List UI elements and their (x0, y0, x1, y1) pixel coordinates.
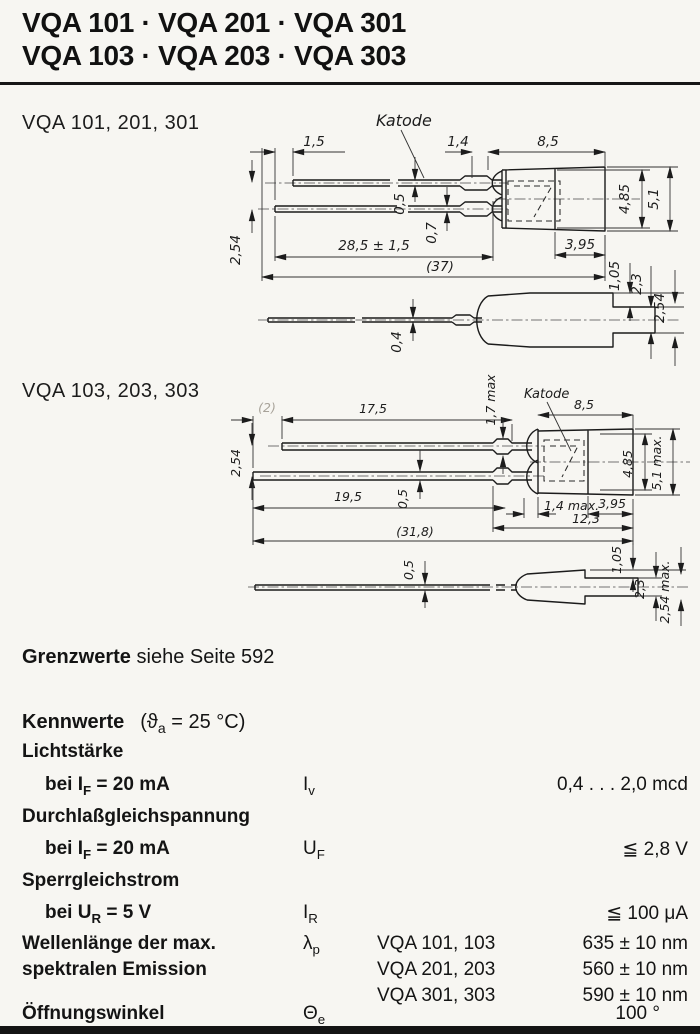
test-condition: bei IF = 20 mA (45, 774, 170, 798)
dim-label-d2-side-lead-th: 0,5 (401, 560, 416, 580)
dim-label-d1-outer-h: 5,1 (646, 188, 662, 209)
dim-label-d1-side-nose-max: 2,54 (652, 293, 668, 323)
limits-note-text: siehe Seite 592 (137, 646, 275, 668)
param-name: Wellenlänge der max. (22, 933, 216, 955)
dim-label-d2-body-len: 8,5 (574, 397, 594, 412)
title-divider-rule (0, 82, 700, 85)
dim-label-d1-lead-upper-th: 0,5 (392, 193, 408, 214)
table-row: Durchlaßgleichspannung (22, 806, 690, 831)
d1-katode-leader-line (401, 130, 424, 178)
test-condition: bei IF = 20 mA (45, 838, 170, 862)
param-name: Sperrgleichstrom (22, 870, 179, 892)
page-title-line1: VQA 101 · VQA 201 · VQA 301 (22, 6, 406, 39)
limits-note: Grenzwerte siehe Seite 592 (22, 646, 274, 669)
dim-label-d2-lead-pitch: 2,54 (228, 449, 243, 477)
dim-label-d2-outer-h: 5,1 max. (649, 435, 664, 490)
value-cell: 560 ± 10 nm (583, 959, 689, 981)
dim-label-d1-back-len: 3,95 (565, 237, 595, 253)
dim-label-d2-body-total: 12,3 (572, 511, 600, 526)
dim-label-d2-side-nose-max: 2,54 max. (657, 560, 672, 623)
dim-label-d1-inner-h: 4,85 (617, 184, 633, 214)
symbol: Θe (303, 1003, 325, 1027)
dim-label-d2-upper-len: 17,5 (359, 401, 387, 416)
characteristics-heading: Kennwerte(ϑa = 25 °C) (22, 711, 245, 736)
page-bottom-scan-bar (0, 1026, 700, 1034)
table-row: Sperrgleichstrom (22, 870, 690, 895)
type-variant: VQA 101, 103 (377, 933, 495, 955)
dim-label-d2-lead-offset: (2) (258, 400, 276, 415)
datasheet-page: VQA 101 · VQA 201 · VQA 301 VQA 103 · VQ… (0, 0, 700, 1034)
page-title: VQA 101 · VQA 201 · VQA 301 VQA 103 · VQ… (22, 6, 406, 72)
table-row: Wellenlänge der max. λp VQA 101, 103 635… (22, 933, 690, 958)
d1-katode-label: Katode (376, 111, 432, 130)
param-name: Öffnungswinkel (22, 1003, 165, 1025)
dim-label-d1-side-step: 1,05 (607, 261, 623, 291)
table-row: Lichtstärke (22, 741, 690, 766)
value-cell: 0,4 . . . 2,0 mcd (557, 774, 688, 796)
page-title-line2: VQA 103 · VQA 203 · VQA 303 (22, 39, 406, 72)
dim-label-d2-overall: (31,8) (396, 524, 434, 539)
dim-label-d2-inner-h: 4,85 (620, 450, 635, 478)
type-variant: VQA 201, 203 (377, 959, 495, 981)
dim-label-d2-lead-th: 0,5 (395, 489, 410, 509)
dim-label-d1-side-lead-th: 0,4 (389, 331, 405, 352)
limits-note-title: Grenzwerte (22, 646, 131, 668)
d2-side-view: 0,5 1,05 2,3 2,54 max. (248, 543, 688, 626)
dim-label-d1-lead-pitch: 2,54 (228, 235, 244, 265)
dim-label-d2-side-nose: 2,3 (632, 579, 647, 599)
value-cell: ≦ 100 μA (606, 902, 688, 925)
value-cell: 100 ° (615, 1003, 660, 1025)
characteristics-title: Kennwerte (22, 711, 124, 733)
technical-drawings-svg: 1,5 Katode 1,4 8,5 0,5 0,7 28,5 ± 1,5 (3… (0, 100, 700, 640)
dim-label-d1-lead-lower-th: 0,7 (424, 222, 440, 244)
d2-katode-leader-line (547, 402, 571, 451)
symbol: IR (303, 902, 318, 926)
symbol: UF (303, 838, 325, 862)
dim-label-d2-side-step: 1,05 (609, 546, 624, 574)
dim-label-d1-lead-len: 28,5 ± 1,5 (338, 238, 409, 254)
dim-label-d1-gap: 1,4 (447, 134, 468, 150)
symbol: Iv (303, 774, 315, 798)
dim-label-d2-crimp-max: 1,7 max (483, 374, 498, 426)
characteristics-condition: (ϑa = 25 °C) (140, 711, 245, 733)
table-row: bei IF = 20 mA UF ≦ 2,8 V (22, 838, 690, 863)
table-row: Öffnungswinkel Θe 100 ° (22, 1003, 690, 1028)
value-cell: 635 ± 10 nm (583, 933, 689, 955)
param-name: Lichtstärke (22, 741, 123, 763)
table-row: spektralen Emission VQA 201, 203 560 ± 1… (22, 959, 690, 984)
d1-dimensions: 1,5 Katode 1,4 8,5 0,5 0,7 28,5 ± 1,5 (3… (228, 111, 678, 281)
symbol: λp (303, 933, 320, 957)
dim-label-d2-back-len: 3,95 (598, 496, 626, 511)
test-condition: bei UR = 5 V (45, 902, 151, 926)
dim-label-d1-lead-offset: 1,5 (303, 134, 324, 150)
dim-label-d1-body-len: 8,5 (537, 134, 558, 150)
d2-dimensions: (2) 17,5 2,54 1,7 max Katode 8,5 0,5 19,… (228, 374, 680, 545)
value-cell: ≦ 2,8 V (622, 838, 688, 861)
dim-label-d1-side-nose: 2,3 (629, 273, 645, 294)
d2-katode-label: Katode (524, 387, 569, 402)
param-name: Durchlaßgleichspannung (22, 806, 250, 828)
dim-label-d1-overall: (37) (426, 259, 454, 275)
table-row: bei UR = 5 V IR ≦ 100 μA (22, 902, 690, 927)
param-name: spektralen Emission (22, 959, 207, 981)
table-row: bei IF = 20 mA Iv 0,4 . . . 2,0 mcd (22, 774, 690, 799)
d1-top-view (258, 167, 640, 231)
dim-label-d2-lower-len: 19,5 (334, 489, 362, 504)
